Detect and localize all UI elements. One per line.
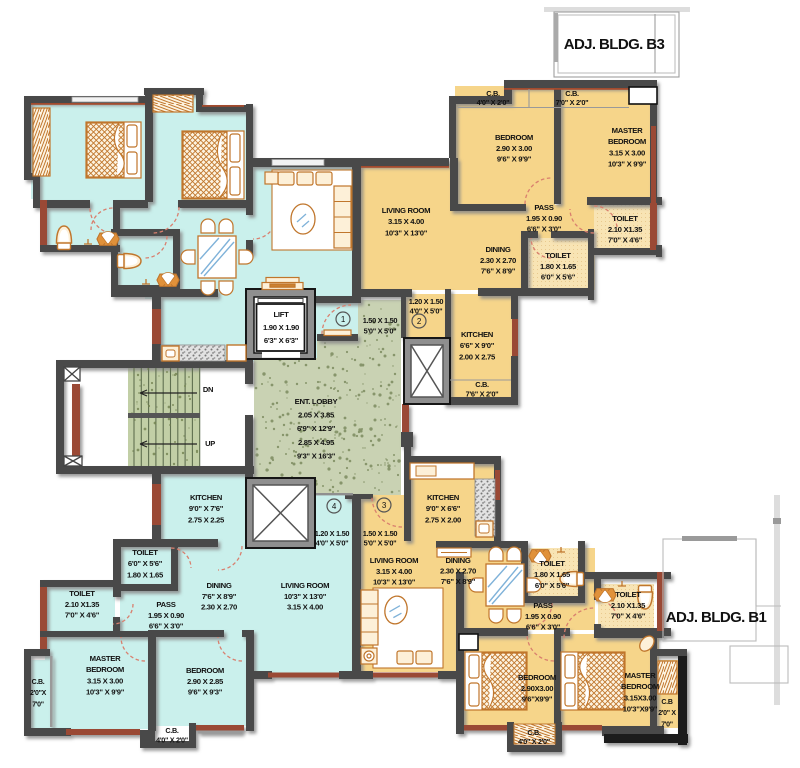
svg-text:BEDROOM: BEDROOM (518, 673, 556, 682)
svg-text:1.80 X 1.65: 1.80 X 1.65 (534, 570, 571, 579)
svg-text:2.90 X 3.00: 2.90 X 3.00 (496, 144, 532, 153)
svg-text:9'6" X 9'9": 9'6" X 9'9" (497, 155, 532, 164)
svg-text:7'6" X 8'9": 7'6" X 8'9" (202, 592, 237, 601)
svg-text:TOILET: TOILET (615, 590, 641, 599)
svg-text:2.30 X 2.70: 2.30 X 2.70 (440, 567, 476, 576)
svg-text:ENT. LOBBY: ENT. LOBBY (295, 397, 338, 406)
svg-text:4'0" X 5'0": 4'0" X 5'0" (316, 539, 349, 548)
svg-text:2.05 X 3.85: 2.05 X 3.85 (298, 411, 335, 420)
svg-text:9'6"X9'9": 9'6"X9'9" (522, 695, 553, 704)
svg-text:9'6" X 9'3": 9'6" X 9'3" (188, 688, 223, 697)
svg-text:10'3" X 9'9": 10'3" X 9'9" (86, 688, 125, 697)
svg-text:9'0" X 6'6": 9'0" X 6'6" (426, 504, 461, 513)
svg-text:7'0" X 4'6": 7'0" X 4'6" (65, 611, 100, 620)
svg-text:1.80 X 1.65: 1.80 X 1.65 (127, 570, 164, 579)
svg-text:6'6" X 3'0": 6'6" X 3'0" (527, 225, 562, 234)
svg-text:LIVING ROOM: LIVING ROOM (281, 581, 329, 590)
svg-text:C.B.: C.B. (32, 679, 45, 686)
svg-text:7'6" X 2'0": 7'6" X 2'0" (466, 390, 499, 399)
svg-text:6'3" X 6'3": 6'3" X 6'3" (264, 336, 299, 345)
svg-text:1.80 X 1.65: 1.80 X 1.65 (540, 262, 577, 271)
svg-text:3.15 X 4.00: 3.15 X 4.00 (388, 217, 424, 226)
svg-text:2.90 X 2.85: 2.90 X 2.85 (187, 677, 224, 686)
svg-text:C.B.: C.B. (527, 728, 540, 737)
svg-text:7'0" X 2'0": 7'0" X 2'0" (556, 98, 589, 107)
svg-text:4'0" X 2'0": 4'0" X 2'0" (156, 736, 188, 745)
svg-text:6'9" X 12'9": 6'9" X 12'9" (297, 424, 336, 433)
svg-text:2.00 X 2.75: 2.00 X 2.75 (459, 352, 496, 361)
svg-text:2.90X3.00: 2.90X3.00 (521, 684, 553, 693)
svg-text:C.B.: C.B. (165, 726, 178, 735)
svg-text:10'3"X9'9": 10'3"X9'9" (623, 705, 658, 714)
svg-text:10'3" X 13'0": 10'3" X 13'0" (373, 578, 416, 587)
svg-text:PASS: PASS (533, 601, 552, 610)
svg-text:7'6" X 8'9": 7'6" X 8'9" (441, 577, 476, 586)
svg-text:2.85 X 4.95: 2.85 X 4.95 (298, 438, 335, 447)
svg-text:6'6" X 3'0": 6'6" X 3'0" (149, 622, 184, 631)
svg-text:KITCHEN: KITCHEN (190, 493, 223, 502)
svg-text:C.B.: C.B. (565, 89, 579, 98)
svg-text:4'0" X 5'0": 4'0" X 5'0" (410, 307, 443, 316)
svg-text:2.10 X1.35: 2.10 X1.35 (611, 601, 646, 610)
svg-text:BEDROOM: BEDROOM (495, 133, 533, 142)
svg-text:7'0" X 4'6": 7'0" X 4'6" (608, 236, 643, 245)
svg-text:6'6" X 3'0": 6'6" X 3'0" (526, 623, 561, 632)
svg-text:1.95 X 0.90: 1.95 X 0.90 (526, 214, 562, 223)
svg-text:7'0" X 4'6": 7'0" X 4'6" (611, 612, 646, 621)
svg-text:BEDROOM: BEDROOM (86, 665, 124, 674)
svg-text:2.30 X 2.70: 2.30 X 2.70 (480, 256, 516, 265)
svg-text:10'3" X 9'9": 10'3" X 9'9" (608, 160, 647, 169)
svg-text:2.75 X 2.00: 2.75 X 2.00 (425, 515, 461, 524)
svg-text:5'0" X 5'0": 5'0" X 5'0" (364, 327, 397, 336)
svg-text:2'0"X: 2'0"X (30, 690, 47, 697)
svg-text:6'0" X 5'6": 6'0" X 5'6" (128, 559, 163, 568)
svg-text:5'0" X 5'0": 5'0" X 5'0" (364, 539, 397, 548)
svg-text:KITCHEN: KITCHEN (461, 330, 494, 339)
svg-text:TOILET: TOILET (132, 548, 158, 557)
svg-text:MASTER: MASTER (625, 671, 656, 680)
svg-text:2.10 X1.35: 2.10 X1.35 (608, 225, 643, 234)
svg-text:PASS: PASS (156, 600, 175, 609)
svg-text:TOILET: TOILET (539, 559, 565, 568)
svg-text:DN: DN (203, 385, 213, 394)
svg-text:10'3" X 13'0": 10'3" X 13'0" (385, 228, 428, 237)
svg-text:LIVING ROOM: LIVING ROOM (370, 556, 418, 565)
svg-text:MASTER: MASTER (90, 654, 121, 663)
svg-text:ADJ. BLDG. B3: ADJ. BLDG. B3 (564, 36, 665, 53)
svg-text:BEDROOM: BEDROOM (608, 137, 646, 146)
svg-text:1.95 X 0.90: 1.95 X 0.90 (525, 612, 561, 621)
svg-text:1.95 X 0.90: 1.95 X 0.90 (148, 611, 184, 620)
svg-text:1.20 X 1.50: 1.20 X 1.50 (409, 297, 444, 306)
svg-text:C.B.: C.B. (475, 380, 489, 389)
svg-text:2'0" X: 2'0" X (658, 710, 676, 717)
svg-text:10'3" X 13'0": 10'3" X 13'0" (284, 592, 327, 601)
svg-text:9'0" X 7'6": 9'0" X 7'6" (189, 504, 224, 513)
svg-text:6'6" X 9'0": 6'6" X 9'0" (460, 341, 495, 350)
svg-text:3.15X3.00: 3.15X3.00 (624, 693, 656, 702)
svg-text:UP: UP (205, 439, 215, 448)
svg-text:7'0": 7'0" (661, 721, 673, 728)
svg-text:3.15 X 4.00: 3.15 X 4.00 (287, 603, 323, 612)
svg-text:1.50 X 1.50: 1.50 X 1.50 (363, 316, 398, 325)
svg-text:2.30 X 2.70: 2.30 X 2.70 (201, 603, 237, 612)
svg-text:TOILET: TOILET (545, 251, 571, 260)
svg-text:TOILET: TOILET (69, 589, 95, 598)
svg-text:DINING: DINING (206, 581, 231, 590)
svg-text:ADJ. BLDG. B1: ADJ. BLDG. B1 (666, 609, 767, 626)
svg-text:6'0" X 5'6": 6'0" X 5'6" (535, 581, 570, 590)
svg-text:LIVING ROOM: LIVING ROOM (382, 206, 430, 215)
svg-text:DINING: DINING (485, 245, 510, 254)
svg-text:1.90 X 1.90: 1.90 X 1.90 (263, 323, 299, 332)
svg-text:7'0": 7'0" (32, 701, 44, 708)
svg-text:1.50 X 1.50: 1.50 X 1.50 (363, 529, 398, 538)
svg-text:9'3" X 16'3": 9'3" X 16'3" (297, 451, 336, 460)
svg-text:4'0" X 2'0": 4'0" X 2'0" (477, 98, 510, 107)
svg-text:2.75 X 2.25: 2.75 X 2.25 (188, 515, 225, 524)
svg-text:2.10 X1.35: 2.10 X1.35 (65, 600, 100, 609)
svg-text:BEDROOM: BEDROOM (186, 666, 224, 675)
svg-text:1.20 X 1.50: 1.20 X 1.50 (315, 529, 350, 538)
svg-text:6'0" X 5'6": 6'0" X 5'6" (541, 273, 576, 282)
svg-text:C.B.: C.B. (486, 89, 500, 98)
svg-text:TOILET: TOILET (612, 214, 638, 223)
svg-text:4'0" X 2'0": 4'0" X 2'0" (518, 737, 550, 746)
svg-text:C.B: C.B (661, 699, 672, 706)
svg-text:DINING: DINING (445, 556, 470, 565)
svg-text:3.15 X 3.00: 3.15 X 3.00 (87, 676, 123, 685)
svg-text:LIFT: LIFT (273, 310, 289, 319)
svg-text:MASTER: MASTER (612, 126, 643, 135)
svg-text:7'6" X 8'9": 7'6" X 8'9" (481, 267, 516, 276)
svg-text:BEDROOM: BEDROOM (621, 682, 659, 691)
svg-text:KITCHEN: KITCHEN (427, 493, 460, 502)
svg-text:3.15 X 4.00: 3.15 X 4.00 (376, 567, 412, 576)
svg-text:PASS: PASS (534, 203, 553, 212)
svg-text:3.15 X 3.00: 3.15 X 3.00 (609, 148, 645, 157)
